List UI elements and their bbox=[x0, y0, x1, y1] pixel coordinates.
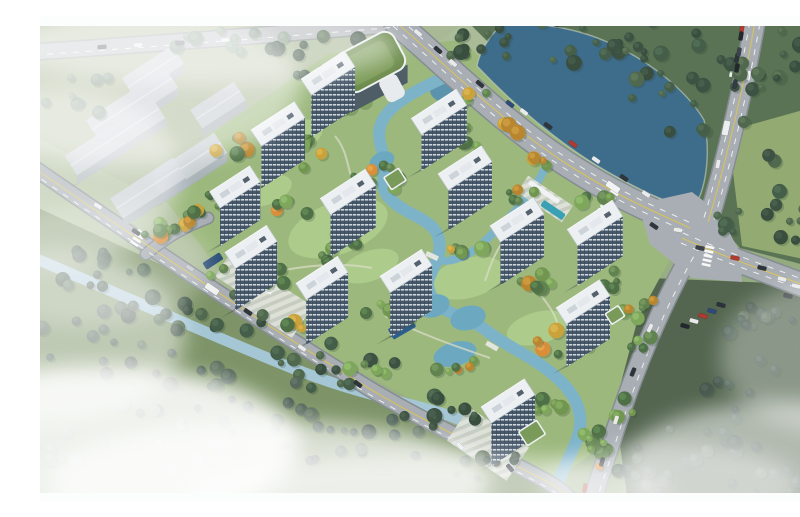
tree-highlight bbox=[665, 83, 670, 88]
tree-highlight bbox=[614, 279, 618, 283]
tree-highlight bbox=[258, 310, 264, 316]
tree-highlight bbox=[630, 73, 638, 81]
tree-highlight bbox=[736, 208, 739, 211]
tree-highlight bbox=[400, 412, 405, 417]
tree-highlight bbox=[628, 344, 632, 348]
tree-highlight bbox=[692, 29, 697, 34]
tree-highlight bbox=[555, 351, 559, 355]
tree-highlight bbox=[470, 357, 475, 362]
tree-highlight bbox=[587, 436, 590, 439]
tree-highlight bbox=[485, 31, 489, 35]
tree-highlight bbox=[701, 384, 708, 391]
tree-highlight bbox=[414, 427, 420, 433]
tree-highlight bbox=[516, 198, 520, 202]
tree-highlight bbox=[272, 347, 279, 354]
tree-highlight bbox=[536, 269, 543, 276]
tree-highlight bbox=[658, 70, 662, 74]
tree-highlight bbox=[513, 186, 518, 191]
tree-highlight bbox=[588, 446, 592, 450]
tree-highlight bbox=[466, 363, 470, 367]
tree-highlight bbox=[345, 379, 351, 385]
tree-highlight bbox=[555, 401, 563, 409]
tree-highlight bbox=[222, 370, 230, 378]
tree-highlight bbox=[507, 190, 510, 193]
tree-highlight bbox=[388, 415, 394, 421]
tree-highlight bbox=[739, 117, 745, 123]
tree-highlight bbox=[518, 278, 522, 282]
tree-highlight bbox=[189, 207, 196, 214]
tree-highlight bbox=[593, 426, 600, 433]
tree-highlight bbox=[599, 192, 606, 199]
tree-highlight bbox=[510, 196, 515, 201]
tree-highlight bbox=[634, 337, 639, 342]
tree-highlight bbox=[641, 68, 648, 75]
tree-highlight bbox=[688, 73, 694, 79]
tree-highlight bbox=[332, 366, 337, 371]
tree-highlight bbox=[691, 101, 695, 105]
tree-highlight bbox=[500, 39, 505, 44]
tree-highlight bbox=[197, 309, 203, 315]
tree-highlight bbox=[344, 363, 351, 370]
tree-highlight bbox=[317, 352, 321, 356]
tree-highlight bbox=[659, 91, 662, 94]
tree-highlight bbox=[576, 196, 584, 204]
tree-highlight bbox=[593, 40, 597, 44]
tree-highlight bbox=[781, 51, 785, 55]
tree-highlight bbox=[792, 237, 797, 242]
tree-highlight bbox=[241, 325, 248, 332]
tree-highlight bbox=[698, 124, 704, 130]
aerial-site-rendering bbox=[40, 16, 800, 501]
tree-highlight bbox=[608, 40, 615, 47]
tree-highlight bbox=[448, 407, 452, 411]
tree-highlight bbox=[455, 34, 459, 38]
tree-highlight bbox=[649, 297, 654, 302]
tree-highlight bbox=[291, 378, 297, 384]
tree-highlight bbox=[307, 384, 312, 389]
tree-highlight bbox=[625, 33, 630, 38]
frame-band-bottom bbox=[40, 493, 800, 501]
tree-highlight bbox=[730, 229, 733, 232]
tree-highlight bbox=[477, 45, 482, 50]
tree-highlight bbox=[531, 282, 537, 288]
tree-highlight bbox=[284, 399, 290, 405]
tree-highlight bbox=[372, 365, 378, 371]
tree-highlight bbox=[550, 57, 553, 60]
tree-highlight bbox=[503, 53, 507, 57]
tree-highlight bbox=[184, 306, 189, 311]
tree-highlight bbox=[384, 305, 391, 312]
tree-highlight bbox=[640, 299, 646, 305]
tree-highlight bbox=[714, 377, 720, 383]
tree-highlight bbox=[326, 338, 333, 345]
tree-highlight bbox=[778, 27, 782, 31]
tree-highlight bbox=[446, 369, 449, 372]
frame-band-top bbox=[40, 16, 800, 26]
tree-highlight bbox=[296, 405, 302, 411]
tree-highlight bbox=[634, 43, 639, 48]
tree-highlight bbox=[390, 358, 396, 364]
tree-highlight bbox=[452, 364, 457, 369]
tree-highlight bbox=[764, 150, 770, 156]
tree-highlight bbox=[305, 409, 312, 416]
tree-highlight bbox=[299, 325, 303, 329]
tree-highlight bbox=[529, 153, 535, 159]
tree-highlight bbox=[300, 163, 305, 168]
tree-highlight bbox=[629, 410, 633, 414]
tree-highlight bbox=[380, 162, 385, 167]
tree-highlight bbox=[211, 362, 218, 369]
tree-highlight bbox=[505, 34, 509, 38]
tree-highlight bbox=[719, 227, 724, 232]
tree-highlight bbox=[568, 57, 576, 65]
tree-highlight bbox=[206, 192, 210, 196]
tree-highlight bbox=[717, 56, 721, 60]
tree-highlight bbox=[512, 452, 516, 456]
tree-highlight bbox=[278, 278, 285, 285]
tree-highlight bbox=[365, 354, 372, 361]
tree-highlight bbox=[448, 246, 452, 250]
tree-highlight bbox=[791, 62, 797, 68]
tree-highlight bbox=[281, 196, 288, 203]
tree-highlight bbox=[282, 319, 289, 326]
tree-highlight bbox=[230, 291, 235, 296]
tree-highlight bbox=[752, 68, 759, 75]
tree-highlight bbox=[433, 415, 437, 419]
tree-highlight bbox=[288, 354, 295, 361]
tree-highlight bbox=[606, 194, 611, 199]
tree-highlight bbox=[361, 308, 367, 314]
tree-highlight bbox=[714, 212, 718, 216]
tree-highlight bbox=[619, 393, 626, 400]
tree-highlight bbox=[353, 241, 358, 246]
tree-highlight bbox=[447, 52, 452, 57]
tree-highlight bbox=[338, 380, 342, 384]
tree-highlight bbox=[476, 242, 484, 250]
tree-highlight bbox=[645, 332, 652, 339]
tree-highlight bbox=[278, 360, 281, 363]
tree-highlight bbox=[377, 301, 381, 305]
tree-highlight bbox=[541, 406, 546, 411]
tree-highlight bbox=[629, 95, 633, 99]
tree-highlight bbox=[787, 218, 791, 222]
tree-highlight bbox=[623, 48, 627, 52]
tree-highlight bbox=[566, 46, 572, 52]
tree-highlight bbox=[316, 365, 322, 371]
tree-highlight bbox=[455, 46, 463, 54]
tree-highlight bbox=[460, 404, 466, 410]
tree-highlight bbox=[197, 367, 202, 372]
tree-highlight bbox=[747, 84, 754, 91]
tree-highlight bbox=[774, 186, 781, 193]
tree-highlight bbox=[771, 200, 777, 206]
tree-highlight bbox=[294, 370, 300, 376]
tree-highlight bbox=[457, 249, 463, 255]
tree-highlight bbox=[317, 149, 323, 155]
tree-highlight bbox=[640, 305, 643, 308]
tree-highlight bbox=[665, 127, 671, 133]
tree-highlight bbox=[693, 40, 700, 47]
tree-highlight bbox=[503, 119, 511, 127]
tree-highlight bbox=[212, 319, 219, 326]
tree-highlight bbox=[550, 324, 558, 332]
tree-highlight bbox=[774, 75, 778, 79]
tree-highlight bbox=[319, 252, 323, 256]
tree-highlight bbox=[610, 267, 615, 272]
tree-highlight bbox=[273, 200, 278, 205]
tree-highlight bbox=[642, 49, 645, 52]
tree-highlight bbox=[579, 429, 585, 435]
tree-highlight bbox=[432, 364, 439, 371]
tree-highlight bbox=[523, 277, 531, 285]
tree-highlight bbox=[625, 305, 630, 310]
tree-highlight bbox=[534, 337, 539, 342]
tree-highlight bbox=[762, 209, 769, 216]
rendering-viewport bbox=[40, 16, 800, 501]
tree-highlight bbox=[433, 393, 440, 400]
tree-highlight bbox=[361, 361, 365, 365]
tree-highlight bbox=[387, 164, 391, 168]
tree-highlight bbox=[759, 85, 762, 88]
tree-highlight bbox=[302, 208, 309, 215]
tree-highlight bbox=[511, 126, 519, 134]
tree-highlight bbox=[483, 90, 487, 94]
tree-highlight bbox=[464, 89, 471, 96]
tree-highlight bbox=[537, 393, 544, 400]
tree-highlight bbox=[775, 232, 782, 239]
tree-highlight bbox=[220, 265, 225, 270]
tree-highlight bbox=[655, 47, 663, 55]
tree-highlight bbox=[546, 279, 551, 284]
tree-highlight bbox=[632, 313, 639, 320]
tree-highlight bbox=[530, 188, 535, 193]
tree-highlight bbox=[367, 165, 373, 171]
tree-highlight bbox=[600, 49, 606, 55]
